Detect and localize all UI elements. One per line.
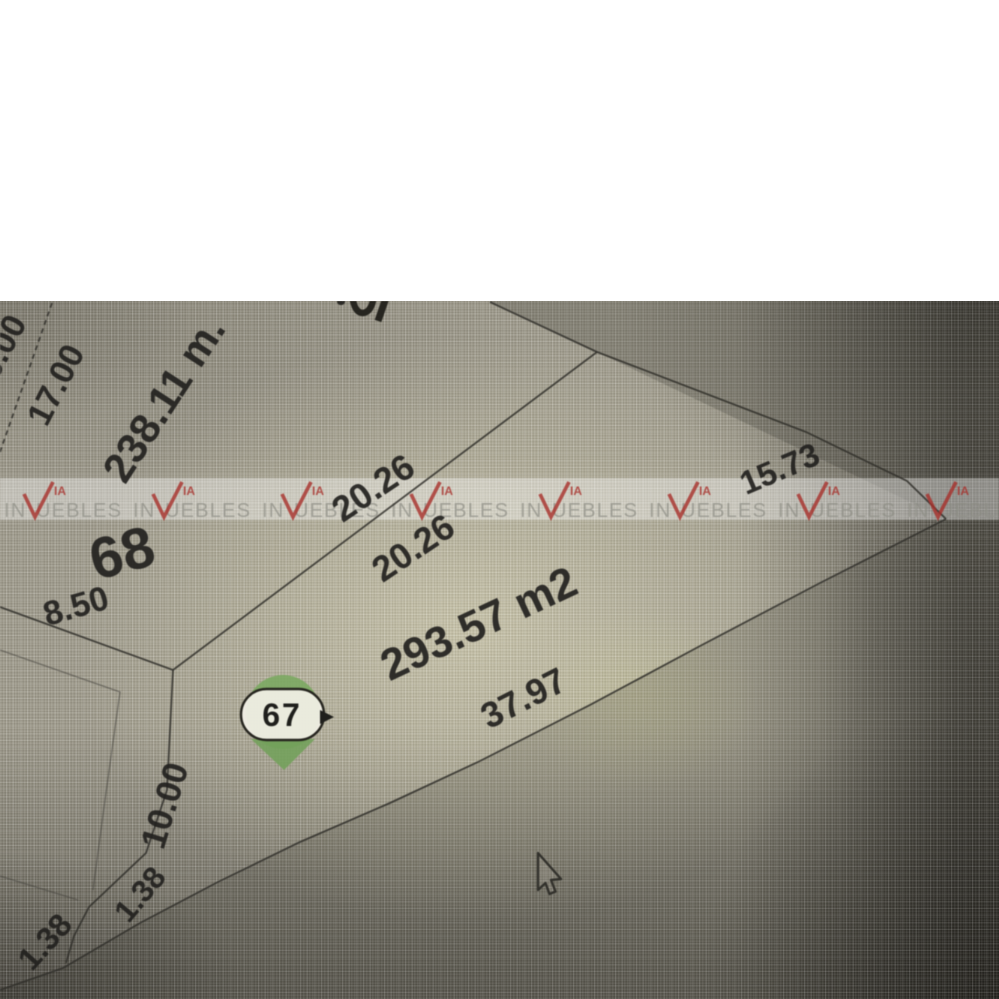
svg-text:17.00: 17.00 — [20, 338, 92, 431]
svg-text:IN: IN — [907, 500, 929, 522]
svg-text:UEBLES: UEBLES — [939, 500, 999, 522]
svg-text:UEBLES: UEBLES — [810, 500, 896, 522]
svg-text:IA: IA — [312, 484, 324, 498]
svg-text:IN: IN — [4, 500, 26, 522]
svg-text:IN: IN — [778, 500, 800, 522]
svg-text:238.11 m.: 238.11 m. — [93, 308, 234, 490]
svg-text:IA: IA — [828, 484, 840, 498]
svg-text:IA: IA — [54, 484, 66, 498]
svg-text:IN: IN — [649, 500, 671, 522]
svg-text:8.50: 8.50 — [39, 579, 113, 634]
svg-text:10.00: 10.00 — [134, 758, 197, 853]
svg-text:IN: IN — [520, 500, 542, 522]
svg-text:IA: IA — [570, 484, 582, 498]
svg-text:UEBLES: UEBLES — [165, 500, 251, 522]
svg-text:IA: IA — [957, 484, 969, 498]
svg-text:IN: IN — [262, 500, 284, 522]
svg-text:IA: IA — [699, 484, 711, 498]
svg-text:IA: IA — [441, 484, 453, 498]
svg-text:IA: IA — [183, 484, 195, 498]
svg-text:0.00: 0.00 — [0, 309, 35, 385]
svg-text:UEBLES: UEBLES — [36, 500, 122, 522]
svg-text:UEBLES: UEBLES — [552, 500, 638, 522]
svg-text:67: 67 — [262, 697, 302, 733]
svg-text:UEBLES: UEBLES — [681, 500, 767, 522]
